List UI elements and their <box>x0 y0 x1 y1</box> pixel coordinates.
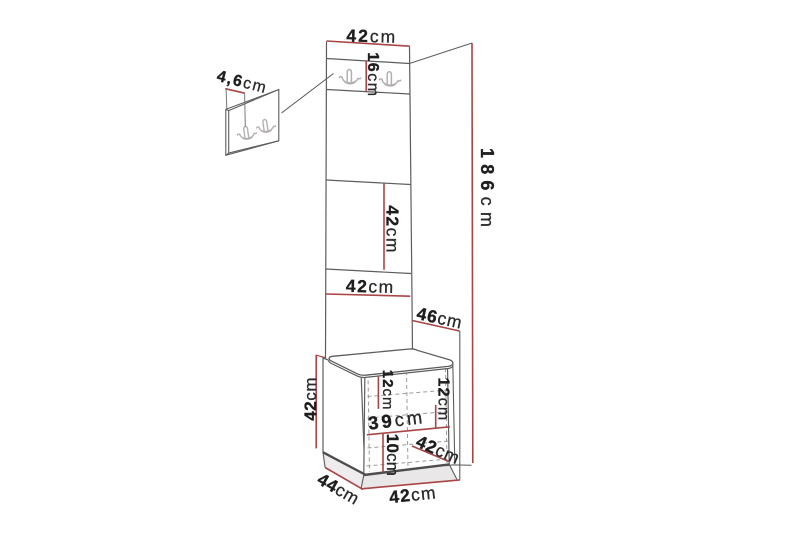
svg-text:12cm: 12cm <box>434 378 451 422</box>
svg-text:42cm: 42cm <box>346 276 395 297</box>
svg-text:12cm: 12cm <box>379 370 396 411</box>
svg-text:16cm: 16cm <box>364 52 381 98</box>
svg-text:10cm: 10cm <box>383 434 402 476</box>
svg-text:42cm: 42cm <box>388 482 437 507</box>
svg-text:42cm: 42cm <box>301 377 320 421</box>
svg-text:186cm: 186cm <box>477 148 497 233</box>
svg-text:46cm: 46cm <box>415 303 465 333</box>
svg-text:42cm: 42cm <box>382 205 402 254</box>
svg-text:42cm: 42cm <box>346 26 397 47</box>
